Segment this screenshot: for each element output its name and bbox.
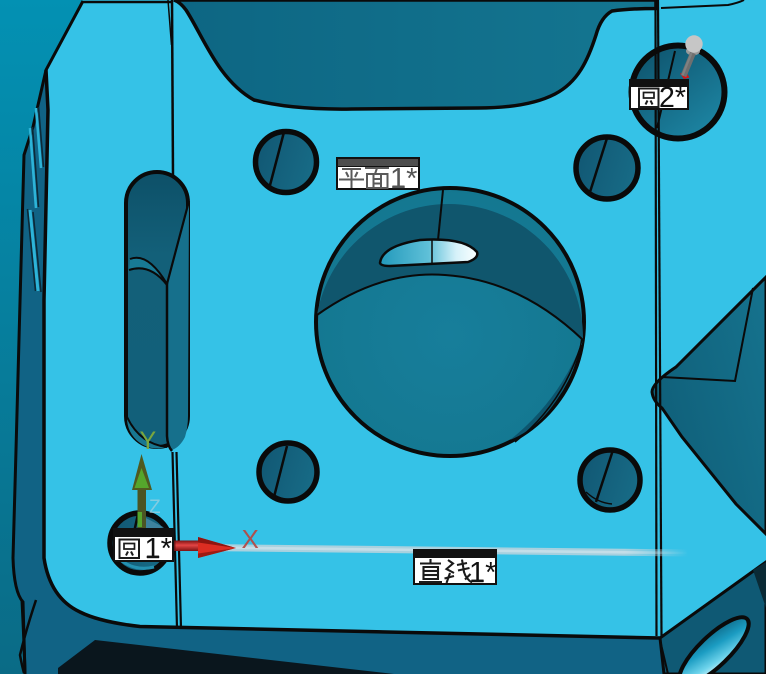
svg-text:1*: 1* — [145, 533, 172, 565]
svg-text:1*: 1* — [390, 163, 417, 195]
svg-text:2*: 2* — [659, 82, 686, 114]
svg-text:1*: 1* — [469, 557, 496, 589]
